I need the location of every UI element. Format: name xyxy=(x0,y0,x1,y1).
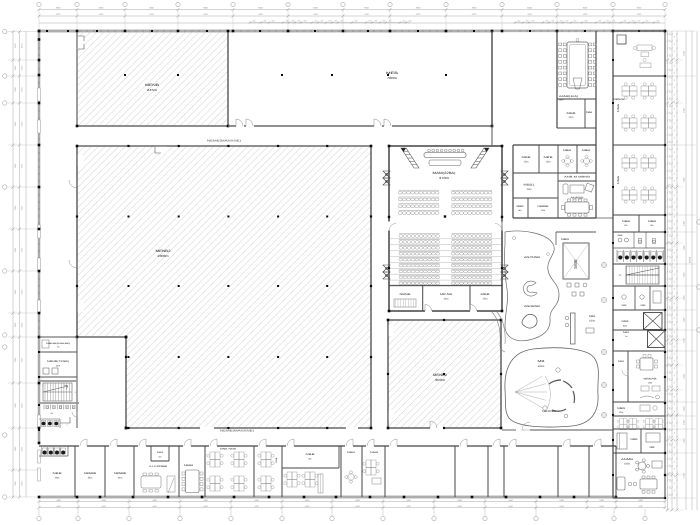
svg-text:NB: NB xyxy=(623,331,630,334)
svg-text:NBNBB: NBNBB xyxy=(84,472,96,475)
svg-text:8m: 8m xyxy=(159,456,162,459)
svg-text:300: 300 xyxy=(669,263,672,266)
svg-text:300: 300 xyxy=(669,486,672,489)
svg-text:990: 990 xyxy=(389,19,392,22)
svg-text:NNB NNB: NNB NNB xyxy=(220,448,237,451)
svg-text:25m: 25m xyxy=(527,188,532,191)
svg-text:300: 300 xyxy=(669,191,672,194)
svg-text:990: 990 xyxy=(292,19,295,22)
svg-text:300: 300 xyxy=(669,105,672,108)
svg-text:245m: 245m xyxy=(147,88,158,92)
svg-text:300: 300 xyxy=(669,169,672,172)
svg-text:NBNBB: NBNBB xyxy=(114,472,126,475)
svg-text:300: 300 xyxy=(669,429,672,432)
svg-text:300: 300 xyxy=(669,133,672,136)
svg-text:NEME(MANXNE): NEME(MANXNE) xyxy=(207,139,241,143)
svg-text:NBB: NBB xyxy=(631,438,639,441)
svg-text:150m: 150m xyxy=(624,463,630,466)
svg-text:NNB: NNB xyxy=(370,451,379,454)
svg-text:NB: NB xyxy=(586,111,593,114)
svg-text:9m: 9m xyxy=(624,224,627,227)
svg-text:300: 300 xyxy=(669,249,672,252)
svg-text:MBB: MBB xyxy=(481,293,490,296)
svg-text:300: 300 xyxy=(669,364,672,367)
svg-text:19m: 19m xyxy=(619,411,623,414)
svg-text:300: 300 xyxy=(669,457,672,460)
svg-text:NNB: NNB xyxy=(617,104,620,112)
svg-text:300: 300 xyxy=(669,270,672,273)
svg-text:990: 990 xyxy=(566,19,569,22)
svg-text:A LEDNBB: A LEDNBB xyxy=(149,465,168,468)
svg-text:29m: 29m xyxy=(55,477,60,480)
svg-text:42000: 42000 xyxy=(689,256,692,263)
svg-text:MBB: MBB xyxy=(517,205,525,208)
svg-text:990: 990 xyxy=(624,19,627,22)
svg-text:990: 990 xyxy=(355,19,358,22)
svg-text:300: 300 xyxy=(669,306,672,309)
svg-text:MB: MB xyxy=(538,359,545,363)
svg-text:300: 300 xyxy=(669,443,672,446)
svg-text:300: 300 xyxy=(669,213,672,216)
svg-text:300: 300 xyxy=(669,177,672,180)
svg-text:300: 300 xyxy=(669,61,672,64)
svg-text:300: 300 xyxy=(669,54,672,57)
svg-text:ANB M MBNB: ANB M MBNB xyxy=(564,176,591,179)
svg-text:300: 300 xyxy=(669,184,672,187)
svg-text:300: 300 xyxy=(669,385,672,388)
svg-text:300: 300 xyxy=(669,277,672,280)
svg-text:990: 990 xyxy=(526,19,529,22)
svg-text:300: 300 xyxy=(669,407,672,410)
svg-text:300: 300 xyxy=(669,256,672,259)
svg-text:NBB: NBB xyxy=(561,238,570,241)
svg-text:21m: 21m xyxy=(56,365,60,368)
svg-text:MBB: MBB xyxy=(567,112,576,115)
svg-text:300: 300 xyxy=(669,378,672,381)
svg-text:300: 300 xyxy=(669,83,672,86)
svg-text:NB: NB xyxy=(157,451,164,454)
svg-text:300: 300 xyxy=(669,241,672,244)
svg-text:2303m: 2303m xyxy=(158,254,170,258)
svg-text:990: 990 xyxy=(409,19,412,22)
svg-text:MB,NB: MB,NB xyxy=(440,293,452,296)
svg-text:300: 300 xyxy=(669,112,672,115)
svg-text:19m: 19m xyxy=(648,382,652,385)
svg-text:300: 300 xyxy=(669,40,672,43)
svg-text:990: 990 xyxy=(403,19,406,22)
svg-text:300: 300 xyxy=(669,97,672,100)
svg-text:15m: 15m xyxy=(546,161,551,164)
svg-text:NBB: NBB xyxy=(622,220,631,223)
svg-text:MENB2: MENB2 xyxy=(156,249,171,253)
svg-text:780m: 780m xyxy=(387,76,398,80)
svg-text:65m: 65m xyxy=(623,325,627,328)
svg-text:300: 300 xyxy=(669,335,672,338)
svg-text:990: 990 xyxy=(304,19,307,22)
svg-text:9m: 9m xyxy=(650,224,653,227)
svg-text:300: 300 xyxy=(669,141,672,144)
svg-text:MENB2: MENB2 xyxy=(433,373,447,377)
svg-text:300: 300 xyxy=(669,119,672,122)
svg-text:300: 300 xyxy=(669,357,672,360)
svg-text:990: 990 xyxy=(253,19,256,22)
svg-text:300: 300 xyxy=(669,436,672,439)
svg-text:14m: 14m xyxy=(541,209,545,212)
svg-text:300: 300 xyxy=(669,126,672,129)
svg-text:NBB: NBB xyxy=(563,149,572,152)
svg-text:990: 990 xyxy=(375,19,378,22)
svg-text:NBB: NBB xyxy=(347,451,356,454)
svg-text:990: 990 xyxy=(315,19,318,22)
svg-text:300: 300 xyxy=(669,400,672,403)
svg-text:990: 990 xyxy=(286,19,289,22)
svg-text:42m: 42m xyxy=(118,477,123,480)
svg-text:NBB: NBB xyxy=(648,220,657,223)
svg-text:300: 300 xyxy=(669,479,672,482)
svg-text:990: 990 xyxy=(369,19,372,22)
svg-text:ANNBB: ANNBB xyxy=(571,197,584,200)
svg-text:NNB: NNB xyxy=(617,176,620,184)
svg-text:300: 300 xyxy=(669,292,672,295)
svg-text:300: 300 xyxy=(669,414,672,417)
svg-text:300: 300 xyxy=(669,465,672,468)
svg-text:NBB: NBB xyxy=(617,407,626,410)
svg-text:300: 300 xyxy=(669,421,672,424)
svg-text:370m: 370m xyxy=(439,176,450,180)
svg-text:NB: NB xyxy=(650,446,656,449)
svg-text:300: 300 xyxy=(669,227,672,230)
svg-text:9m: 9m xyxy=(308,458,311,461)
svg-text:NBMBB: NBMBB xyxy=(538,205,550,208)
svg-text:300: 300 xyxy=(669,328,672,331)
svg-text:NNB: NNB xyxy=(275,457,278,462)
svg-text:990: 990 xyxy=(585,19,588,22)
svg-text:300: 300 xyxy=(669,450,672,453)
svg-text:990: 990 xyxy=(383,19,386,22)
svg-text:NBNAB: NBNAB xyxy=(644,378,658,381)
svg-text:990: 990 xyxy=(518,19,521,22)
svg-text:300: 300 xyxy=(669,349,672,352)
svg-text:NBNAB: NBNAB xyxy=(614,98,626,101)
svg-text:NB: NB xyxy=(641,304,647,307)
svg-text:990: 990 xyxy=(298,19,301,22)
svg-text:ANXNNB: ANXNNB xyxy=(524,256,540,259)
svg-text:303m: 303m xyxy=(435,378,446,382)
svg-text:300: 300 xyxy=(669,69,672,72)
svg-text:300: 300 xyxy=(669,234,672,237)
svg-text:7m: 7m xyxy=(57,346,60,349)
svg-text:300: 300 xyxy=(669,148,672,151)
svg-text:300: 300 xyxy=(669,493,672,496)
svg-text:990: 990 xyxy=(272,19,275,22)
svg-text:990: 990 xyxy=(657,19,660,22)
svg-text:24m: 24m xyxy=(444,298,449,301)
svg-text:990: 990 xyxy=(341,19,344,22)
svg-text:990: 990 xyxy=(607,19,610,22)
svg-text:990: 990 xyxy=(599,19,602,22)
svg-text:25m: 25m xyxy=(88,477,93,480)
svg-text:MENB: MENB xyxy=(145,83,160,87)
svg-text:265m: 265m xyxy=(538,365,545,368)
svg-text:MAM(228A): MAM(228A) xyxy=(433,171,456,175)
svg-text:300: 300 xyxy=(669,371,672,374)
svg-text:NBB: NBB xyxy=(184,464,194,467)
svg-text:300: 300 xyxy=(669,205,672,208)
svg-text:990: 990 xyxy=(321,19,324,22)
svg-text:300: 300 xyxy=(669,162,672,165)
svg-text:SWE: SWE xyxy=(573,259,578,269)
svg-text:300: 300 xyxy=(669,47,672,50)
svg-text:990: 990 xyxy=(632,19,635,22)
svg-text:NBB: NBB xyxy=(544,156,553,159)
svg-text:300: 300 xyxy=(669,472,672,475)
svg-text:NBNB(NANB): NBNB(NANB) xyxy=(46,342,71,345)
svg-text:300: 300 xyxy=(669,321,672,324)
svg-text:NEME(MANXNE): NEME(MANXNE) xyxy=(220,429,254,433)
svg-text:NB: NB xyxy=(622,304,628,307)
svg-text:990: 990 xyxy=(264,19,267,22)
svg-text:990: 990 xyxy=(638,19,641,22)
svg-text:990: 990 xyxy=(646,19,649,22)
svg-text:300: 300 xyxy=(669,198,672,201)
svg-text:990: 990 xyxy=(532,19,535,22)
svg-text:ANNBNB: ANNBNB xyxy=(524,305,540,308)
svg-text:NBB: NBB xyxy=(306,453,316,456)
svg-text:300: 300 xyxy=(669,76,672,79)
svg-text:990: 990 xyxy=(560,19,563,22)
svg-text:990: 990 xyxy=(552,19,555,22)
svg-text:300: 300 xyxy=(669,220,672,223)
svg-text:990: 990 xyxy=(546,19,549,22)
svg-text:ANMB: ANMB xyxy=(621,458,633,461)
svg-text:990: 990 xyxy=(335,19,338,22)
svg-text:300: 300 xyxy=(669,155,672,158)
svg-text:NBNB: NBNB xyxy=(400,293,411,296)
svg-text:990: 990 xyxy=(574,19,577,22)
svg-text:300: 300 xyxy=(669,33,672,36)
svg-text:8m: 8m xyxy=(518,209,521,212)
svg-text:NB: NB xyxy=(618,360,625,363)
svg-text:300: 300 xyxy=(669,342,672,345)
svg-text:7m: 7m xyxy=(625,335,628,338)
svg-text:MBB1: MBB1 xyxy=(524,184,536,187)
svg-text:24m: 24m xyxy=(569,116,574,119)
svg-text:25m: 25m xyxy=(483,298,488,301)
svg-text:NB: NB xyxy=(589,315,595,318)
svg-text:300: 300 xyxy=(669,313,672,316)
svg-text:990: 990 xyxy=(613,19,616,22)
svg-text:NNB: NNB xyxy=(622,320,630,323)
svg-text:NBXNB: NBXNB xyxy=(542,410,556,413)
svg-text:150m: 150m xyxy=(589,320,595,323)
svg-text:15m: 15m xyxy=(524,161,529,164)
svg-text:NBB: NBB xyxy=(582,149,591,152)
svg-text:990: 990 xyxy=(329,19,332,22)
svg-text:300: 300 xyxy=(669,299,672,302)
svg-text:300: 300 xyxy=(669,393,672,396)
svg-text:300: 300 xyxy=(669,285,672,288)
svg-text:NBNB(74NB): NBNB(74NB) xyxy=(47,360,69,363)
svg-text:MBB: MBB xyxy=(522,156,531,159)
svg-text:NBB: NBB xyxy=(53,472,62,475)
svg-text:300: 300 xyxy=(669,90,672,93)
